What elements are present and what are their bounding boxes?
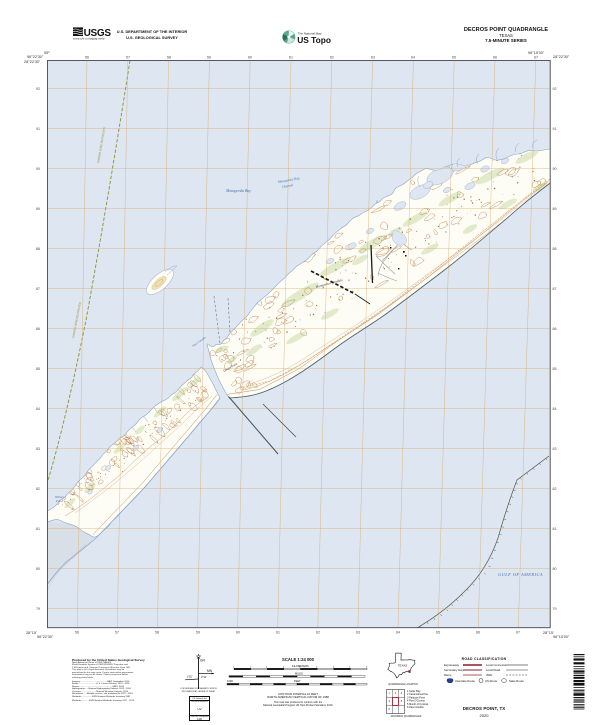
svg-text:US Route: US Route	[485, 679, 498, 683]
svg-text:96°15'00": 96°15'00"	[553, 635, 570, 639]
svg-text:8: 8	[366, 666, 368, 668]
svg-text:55²: 55²	[44, 51, 50, 55]
svg-text:63: 63	[356, 631, 360, 635]
svg-text:80: 80	[553, 567, 557, 571]
svg-text:91: 91	[553, 127, 557, 131]
svg-text:science for a changing world: science for a changing world	[73, 37, 105, 40]
svg-text:66: 66	[493, 56, 497, 60]
svg-text:57: 57	[126, 56, 130, 60]
svg-text:57: 57	[115, 631, 119, 635]
svg-text:67: 67	[534, 56, 538, 60]
svg-text:84: 84	[553, 407, 557, 411]
svg-text:4: 4	[388, 700, 390, 703]
svg-text:56: 56	[75, 631, 79, 635]
svg-text:60: 60	[248, 56, 252, 60]
svg-text:85: 85	[36, 367, 40, 371]
svg-text:80: 80	[36, 567, 40, 571]
svg-text:83: 83	[553, 447, 557, 451]
svg-text:62: 62	[316, 631, 320, 635]
svg-text:6: 6	[388, 708, 390, 711]
svg-text:81: 81	[553, 527, 557, 531]
svg-text:5: 5	[400, 700, 402, 703]
svg-text:82: 82	[553, 487, 557, 491]
svg-text:TEXAS: TEXAS	[398, 663, 407, 667]
svg-text:81: 81	[36, 527, 40, 531]
svg-text:91: 91	[36, 127, 40, 131]
svg-text:Secondary Hwy: Secondary Hwy	[444, 668, 464, 672]
svg-text:86: 86	[553, 327, 557, 331]
svg-text:2°41': 2°41'	[201, 675, 207, 679]
svg-text:88: 88	[36, 247, 40, 251]
svg-text:59: 59	[207, 56, 211, 60]
svg-text:Ramp: Ramp	[444, 673, 452, 677]
svg-text:90: 90	[36, 167, 40, 171]
svg-text:28°22'30": 28°22'30"	[24, 60, 41, 64]
svg-text:MILES: MILES	[295, 671, 303, 675]
svg-text:87: 87	[36, 287, 40, 291]
svg-text:65: 65	[452, 56, 456, 60]
svg-text:61: 61	[276, 631, 280, 635]
svg-text:96°15'00": 96°15'00"	[528, 51, 545, 55]
svg-text:Pond: Pond	[55, 499, 63, 503]
svg-text:64: 64	[396, 631, 400, 635]
svg-text:58: 58	[167, 56, 171, 60]
svg-text:62: 62	[330, 56, 334, 60]
svg-text:MN: MN	[207, 669, 213, 673]
svg-text:82: 82	[36, 487, 40, 491]
svg-text:KILOMETERS: KILOMETERS	[292, 664, 309, 668]
svg-text:3: 3	[400, 692, 402, 695]
svg-text:GULF OF AMERICA: GULF OF AMERICA	[498, 572, 543, 577]
svg-text:Interstate Route: Interstate Route	[455, 679, 475, 683]
svg-text:GN: GN	[200, 659, 205, 663]
svg-text:4WD: 4WD	[486, 673, 492, 677]
svg-text:87: 87	[553, 287, 557, 291]
svg-text:State Route: State Route	[509, 679, 524, 683]
svg-text:84: 84	[36, 407, 40, 411]
svg-text:60: 60	[236, 631, 240, 635]
svg-text:Local Connector: Local Connector	[486, 663, 506, 667]
svg-text:86: 86	[36, 327, 40, 331]
svg-text:83: 83	[36, 447, 40, 451]
svg-text:Local Road: Local Road	[486, 668, 501, 672]
svg-text:96°22'30": 96°22'30"	[27, 55, 44, 59]
svg-text:6 Pass Cavallo: 6 Pass Cavallo	[407, 706, 424, 709]
svg-text:61: 61	[289, 56, 293, 60]
svg-text:FEET: FEET	[294, 679, 301, 683]
svg-text:79: 79	[36, 607, 40, 611]
svg-text:67: 67	[516, 631, 520, 635]
svg-text:1000: 1000	[227, 679, 233, 683]
svg-text:90: 90	[553, 167, 557, 171]
svg-text:59: 59	[196, 631, 200, 635]
svg-text:56: 56	[85, 56, 89, 60]
svg-text:US Topo: US Topo	[297, 35, 331, 45]
svg-text:Matagorda Bay: Matagorda Bay	[225, 188, 251, 193]
svg-text:89: 89	[553, 207, 557, 211]
svg-text:63: 63	[371, 56, 375, 60]
svg-text:28°15': 28°15'	[26, 631, 37, 635]
svg-text:Expressway: Expressway	[444, 663, 460, 667]
svg-text:96°22'30": 96°22'30"	[37, 635, 54, 639]
svg-text:28°22'30": 28°22'30"	[553, 55, 570, 59]
svg-text:92: 92	[553, 87, 557, 91]
svg-text:1: 1	[388, 692, 390, 695]
svg-text:92: 92	[36, 87, 40, 91]
svg-text:2: 2	[394, 692, 396, 695]
svg-text:85: 85	[553, 367, 557, 371]
svg-text:64: 64	[411, 56, 415, 60]
svg-text:58: 58	[155, 631, 159, 635]
svg-text:79: 79	[553, 607, 557, 611]
svg-text:1°52': 1°52'	[187, 674, 193, 678]
svg-text:66: 66	[476, 631, 480, 635]
svg-text:89: 89	[36, 207, 40, 211]
svg-text:65: 65	[436, 631, 440, 635]
svg-text:88: 88	[553, 247, 557, 251]
